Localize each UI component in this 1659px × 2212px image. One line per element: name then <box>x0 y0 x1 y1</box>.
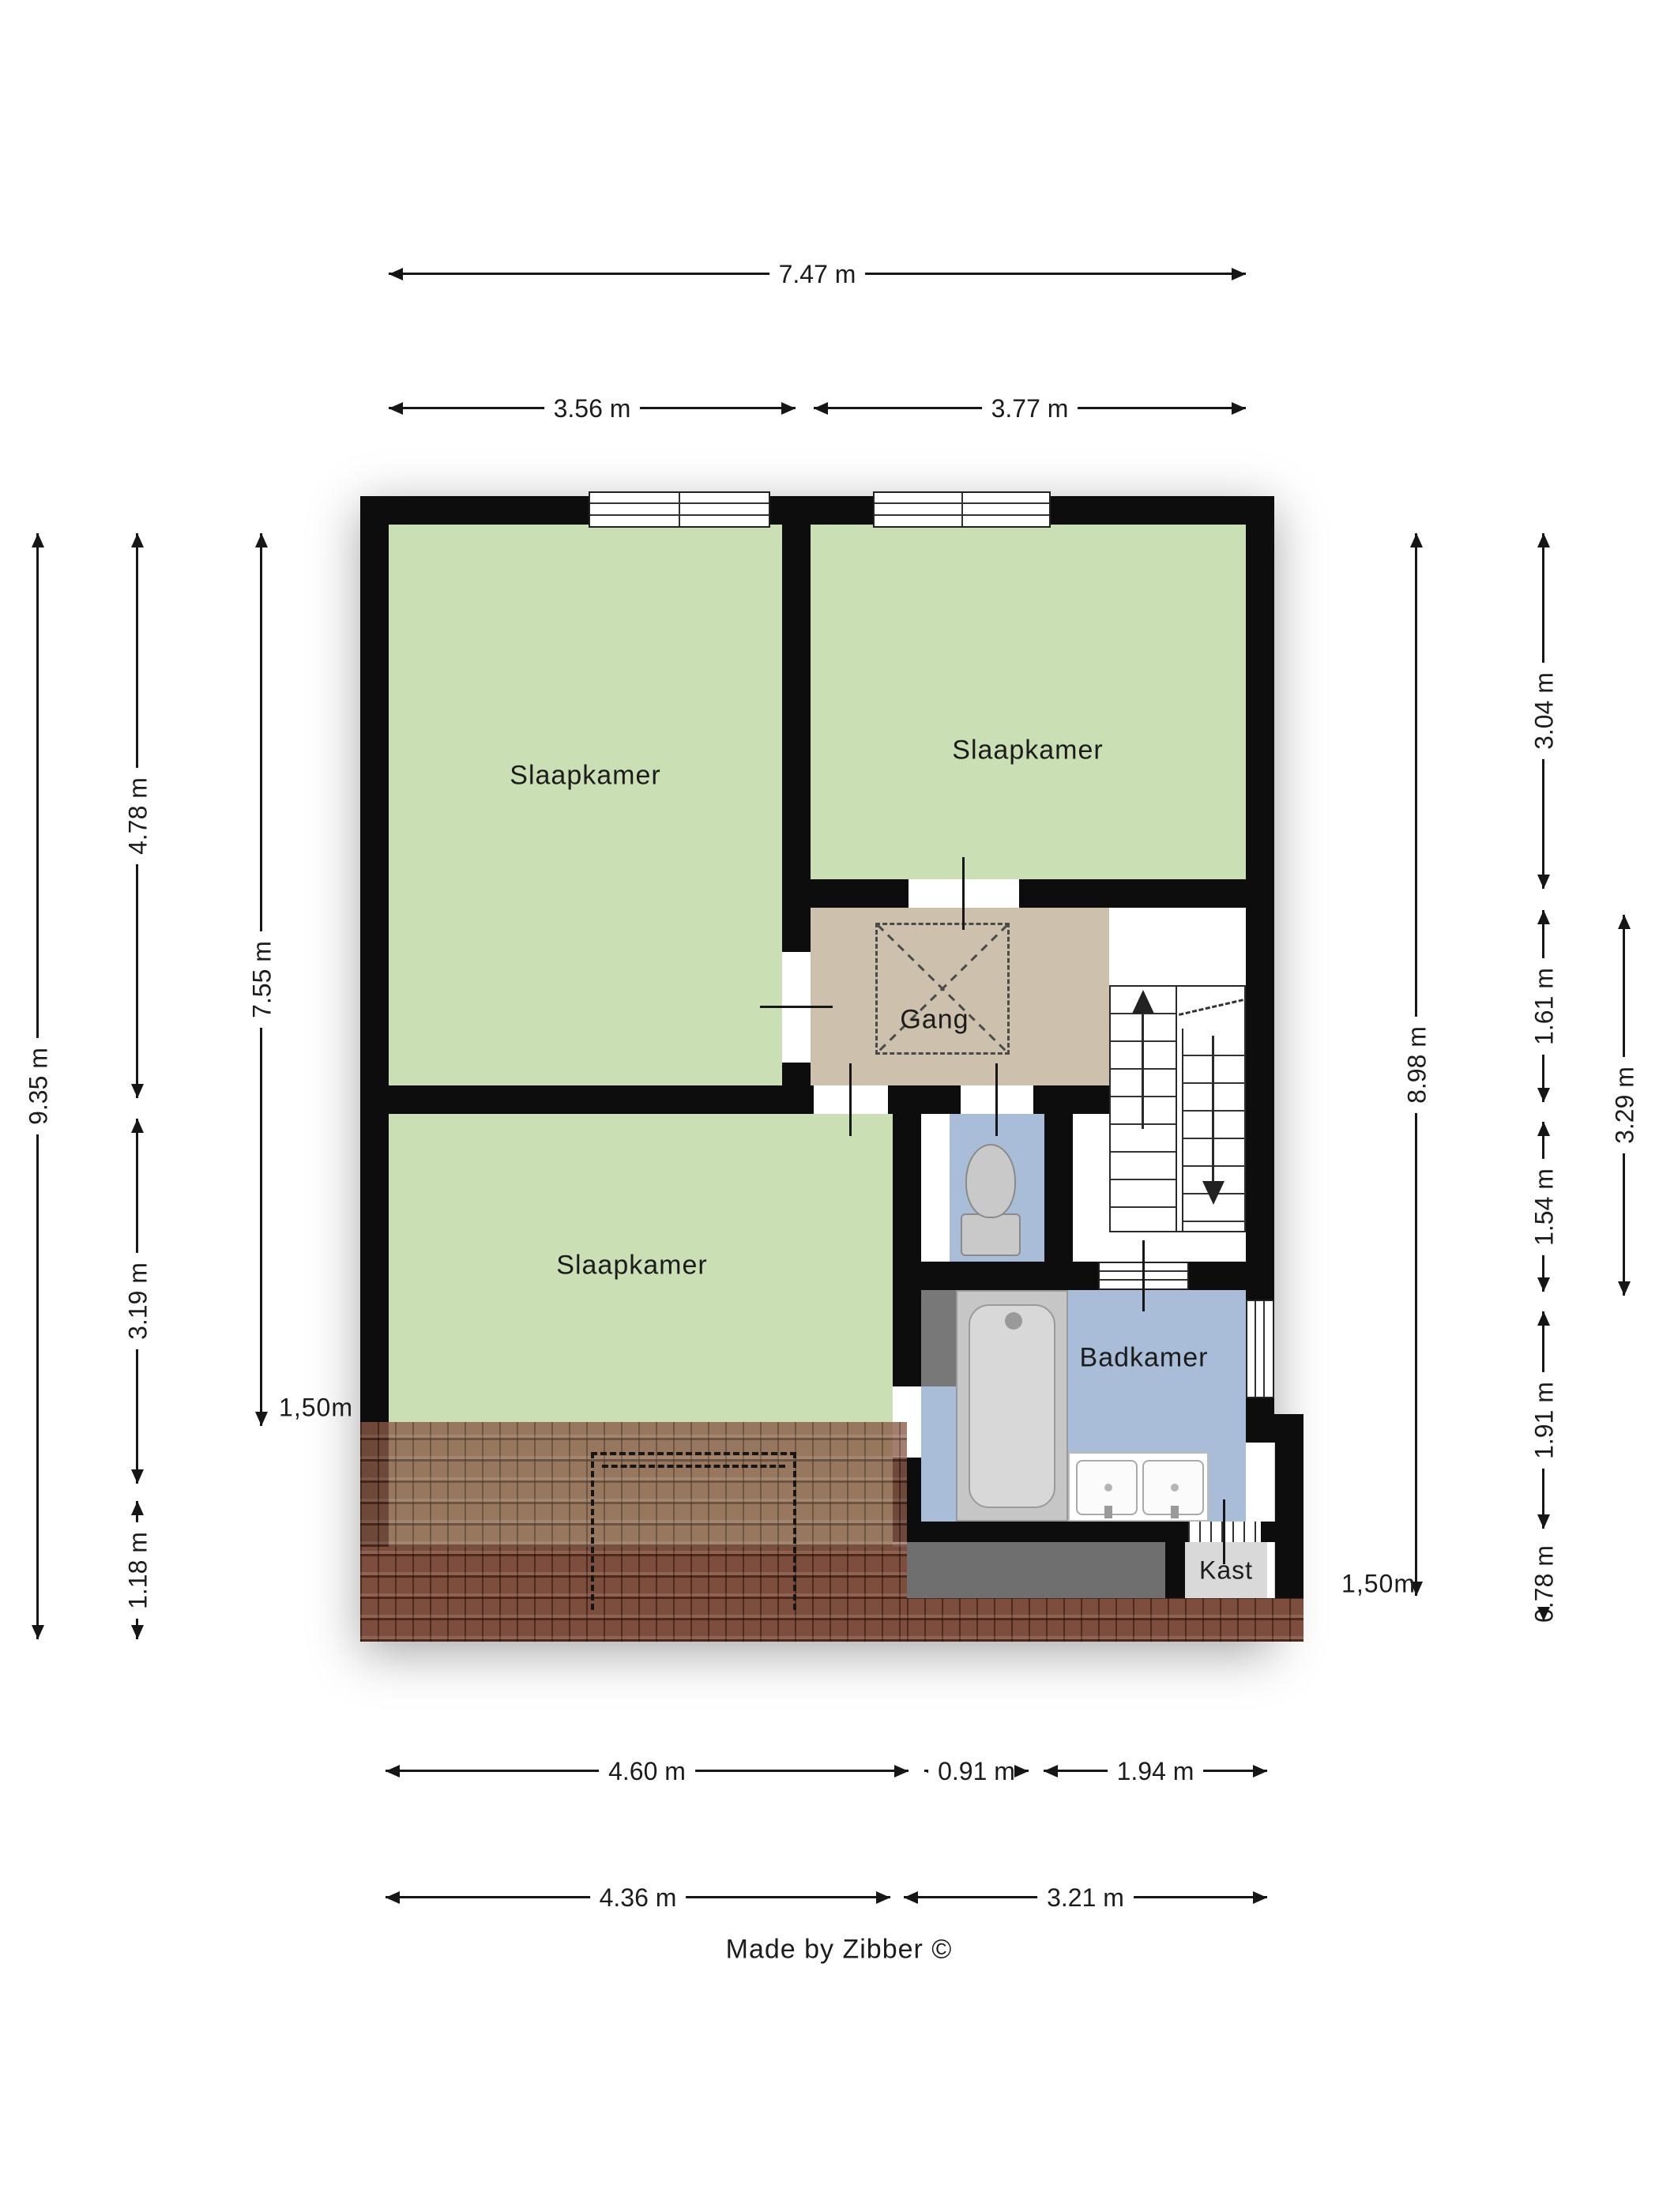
sink-icon <box>1076 1460 1138 1515</box>
dimension-width-bottom-left-2: 4.36 m <box>386 1896 890 1898</box>
window-tick <box>1142 1240 1145 1311</box>
room-bedroom-top-right <box>811 525 1246 879</box>
label-150m-right: 1,50m <box>1341 1570 1416 1597</box>
dimension-height-bedroom-bottom: 3.19 m <box>136 1119 138 1484</box>
dimension-width-bottom-left: 4.60 m <box>386 1770 908 1772</box>
dimension-height-hall: 1.61 m <box>1542 910 1544 1102</box>
wall-closet-top-stub <box>1261 1522 1275 1542</box>
bathtub-faucet-icon <box>1005 1312 1022 1330</box>
window-bath-right-icon <box>1246 1300 1274 1398</box>
dimension-height-bedroom-tl: 4.78 m <box>136 533 138 1098</box>
wall-right-lower <box>1275 1443 1303 1598</box>
room-label-bedroom-top-right: Slaapkamer <box>952 735 1103 765</box>
stair-cut-dashed-line <box>1179 997 1250 1016</box>
dimension-height-755: 7.55 m <box>260 533 262 1426</box>
stairs-down-arrowhead-icon <box>1202 1181 1224 1205</box>
roof-terrace-band <box>907 1542 1165 1598</box>
dimension-height-toilet: 1.54 m <box>1542 1122 1544 1292</box>
dimension-height-bedroom-tr: 3.04 m <box>1542 533 1544 889</box>
wall-bedroom-tr-hall <box>782 879 1274 908</box>
dimension-height-total-right: 8.98 m <box>1415 533 1417 1596</box>
dimension-width-total: 7.47 m <box>389 273 1246 275</box>
room-label-bedroom-top-left: Slaapkamer <box>510 761 660 790</box>
room-label-closet: Kast <box>1199 1556 1253 1584</box>
dimension-width-bedroom-tl: 3.56 m <box>389 407 796 409</box>
wall-left <box>360 496 389 1547</box>
dimension-height-total-left: 9.35 m <box>36 533 39 1639</box>
dimension-width-toilet: 0.91 m <box>924 1770 1029 1772</box>
dimension-height-closet-band: 0.78 m <box>1542 1547 1544 1621</box>
room-label-bedroom-bottom: Slaapkamer <box>556 1251 707 1280</box>
door-tick <box>995 1063 998 1136</box>
door-tick <box>760 1006 833 1008</box>
sink-icon <box>1142 1460 1204 1515</box>
wall-toilet-right <box>1044 1114 1073 1262</box>
window-bedroom-tr-icon <box>873 491 1051 528</box>
wall-closet-left <box>1165 1542 1185 1598</box>
stairs-up-arrowhead-icon <box>1132 990 1154 1014</box>
credit-text: Made by Zibber © <box>726 1935 953 1964</box>
dimension-height-bathroom: 1.91 m <box>1542 1311 1544 1529</box>
floorplan-page: Slaapkamer Slaapkamer Slaapkamer Gang Ba… <box>0 0 1659 2212</box>
bathroom-shaft <box>921 1290 956 1386</box>
hall-void-dashed-square <box>875 923 1010 1055</box>
door-tick <box>962 857 965 930</box>
sink-counter <box>1068 1452 1209 1522</box>
stair-landing <box>1073 1232 1246 1262</box>
window-bedroom-tl-icon <box>589 491 770 528</box>
wall-bath-bottom <box>893 1522 1188 1542</box>
stairs-up-arrow-icon <box>1142 1012 1144 1129</box>
dimension-height-roof-left: 1.18 m <box>136 1501 138 1639</box>
toilet-tank-icon <box>961 1213 1021 1256</box>
wall-right-jog <box>1246 1414 1303 1443</box>
staircase <box>1109 985 1246 1232</box>
dimension-width-bedroom-tr: 3.77 m <box>814 407 1246 409</box>
wall-bath-top <box>893 1262 1274 1290</box>
dimension-width-bottom-right-2: 3.21 m <box>904 1896 1267 1898</box>
door-tick <box>849 1063 852 1136</box>
room-label-hall: Gang <box>900 1005 969 1034</box>
stairs-down-arrow-icon <box>1212 1036 1214 1183</box>
dormer-dashed-outline <box>591 1452 796 1610</box>
roof-tiles-right <box>907 1598 1303 1642</box>
stair-flight-up <box>1111 987 1177 1231</box>
dimension-width-bathroom: 1.94 m <box>1044 1770 1267 1772</box>
toilet-bowl-icon <box>965 1144 1016 1218</box>
wall-top <box>360 496 1274 525</box>
label-150m-left: 1,50m <box>279 1394 353 1421</box>
dimension-height-stairzone: 3.29 m <box>1623 915 1625 1296</box>
room-label-bathroom: Badkamer <box>1080 1343 1209 1372</box>
bathtub-icon <box>956 1290 1068 1522</box>
room-bedroom-top-left <box>389 525 782 1085</box>
closet-door-tick <box>1223 1499 1225 1564</box>
